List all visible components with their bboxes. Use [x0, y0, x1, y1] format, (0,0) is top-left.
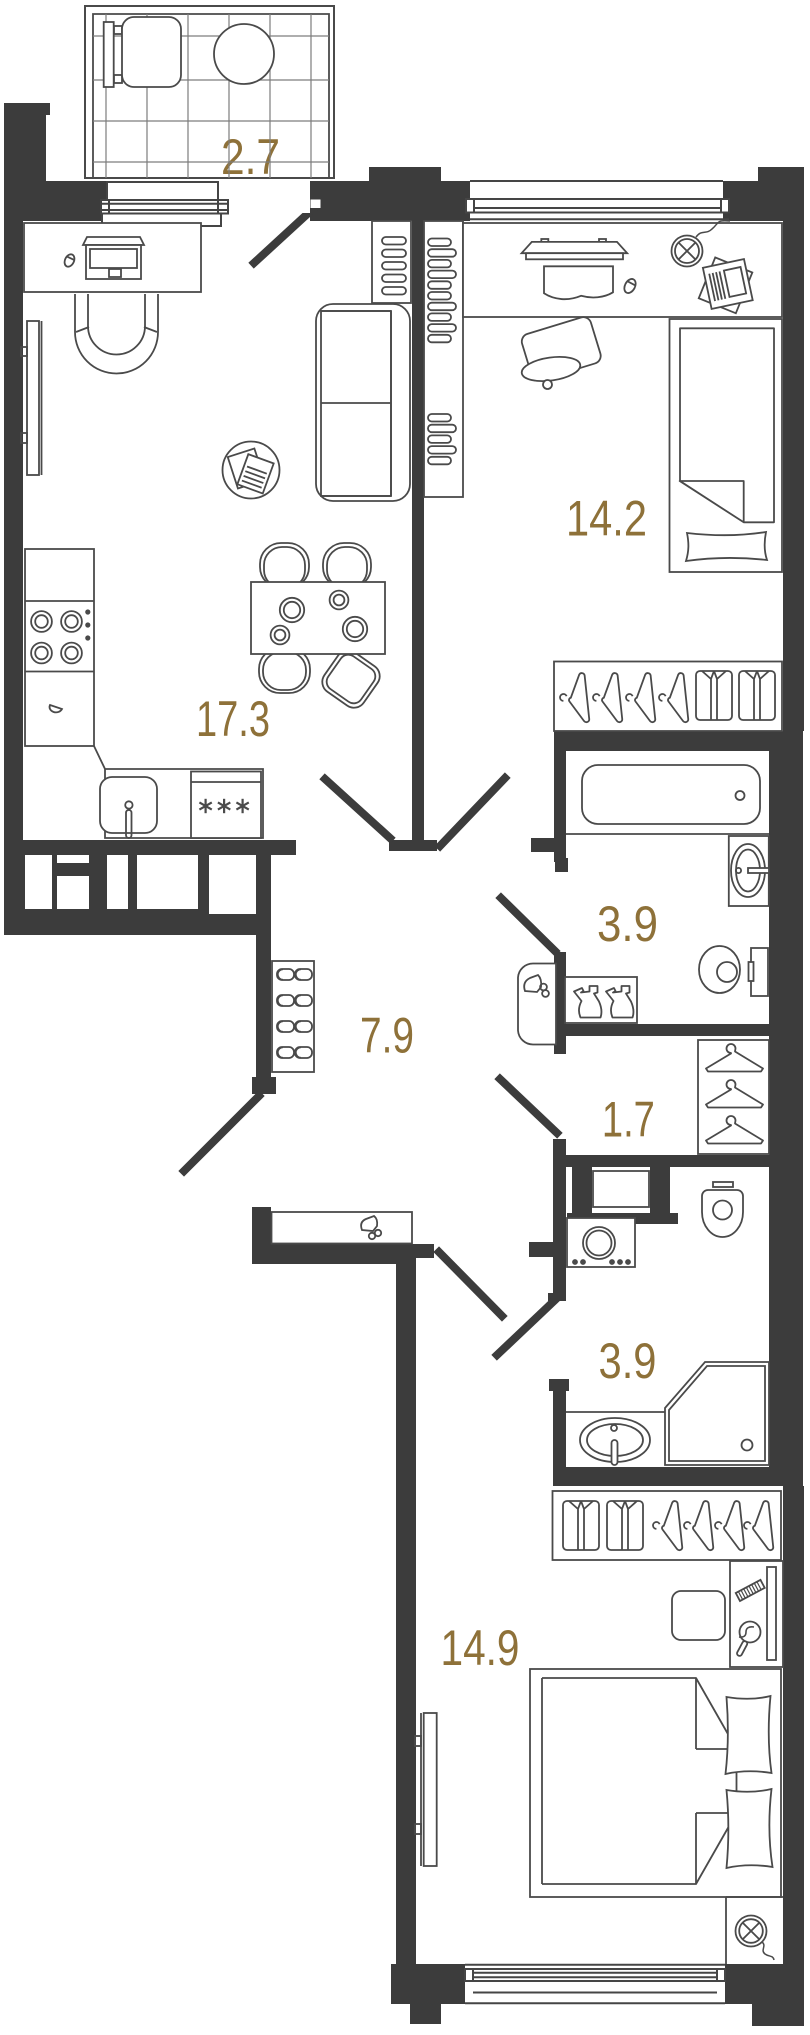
svg-text:3.9: 3.9: [599, 1333, 657, 1389]
svg-text:7.9: 7.9: [360, 1008, 414, 1064]
svg-text:1.7: 1.7: [602, 1092, 655, 1148]
svg-text:14.9: 14.9: [441, 1620, 520, 1676]
svg-text:17.3: 17.3: [196, 691, 270, 747]
svg-text:2.7: 2.7: [221, 129, 280, 185]
svg-text:14.2: 14.2: [566, 491, 647, 547]
svg-text:3.9: 3.9: [597, 896, 658, 952]
